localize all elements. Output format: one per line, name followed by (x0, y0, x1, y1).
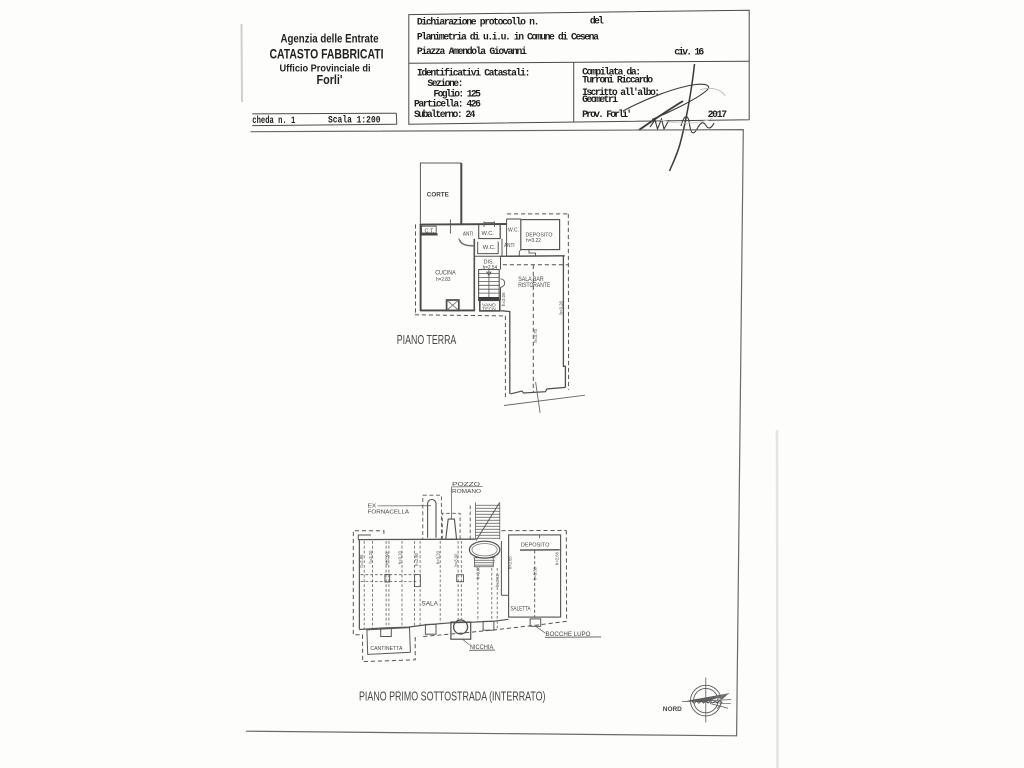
svg-text:PIANO PRIMO SOTTOSTRADA (INTER: PIANO PRIMO SOTTOSTRADA (INTERRATO) (359, 689, 546, 704)
svg-text:h=3.00: h=3.00 (453, 553, 458, 567)
svg-text:TECN: TECN (482, 307, 496, 313)
svg-text:2017: 2017 (708, 109, 728, 120)
svg-text:h=3.20: h=3.20 (398, 550, 403, 564)
svg-text:W.C.: W.C. (483, 245, 496, 251)
svg-text:DEPOSITO: DEPOSITO (521, 543, 550, 549)
svg-text:h=2.90: h=2.90 (414, 552, 419, 566)
svg-text:EX: EX (368, 503, 377, 509)
svg-text:Scala 1:200: Scala 1:200 (328, 115, 381, 127)
svg-text:h=2.86: h=2.86 (359, 554, 364, 568)
svg-text:Agenzia delle Entrate: Agenzia delle Entrate (281, 34, 379, 46)
svg-text:h=3.70: h=3.70 (533, 328, 538, 342)
svg-text:h=2.54: h=2.54 (483, 265, 498, 271)
svg-text:PIANO TERRA: PIANO TERRA (397, 333, 457, 347)
svg-text:civ. 16: civ. 16 (674, 47, 704, 58)
svg-text:SALETTA: SALETTA (511, 606, 531, 612)
svg-text:h=3.20: h=3.20 (559, 300, 564, 314)
svg-text:CORTE: CORTE (427, 191, 450, 198)
svg-text:CUCINA: CUCINA (435, 269, 456, 276)
svg-text:h=2.66: h=2.66 (555, 551, 560, 565)
svg-text:ANTI: ANTI (504, 243, 515, 249)
svg-text:Planimetria di u.i.u. in Comun: Planimetria di u.i.u. in Comune di Cesen… (417, 31, 599, 42)
svg-text:Turroni Riccardo: Turroni Riccardo (582, 75, 653, 86)
svg-text:CATASTO FABBRICATI: CATASTO FABBRICATI (270, 46, 384, 61)
svg-text:h=3.22: h=3.22 (526, 238, 541, 244)
svg-text:h=2.90: h=2.90 (385, 551, 390, 565)
svg-text:NORD: NORD (663, 706, 682, 713)
svg-text:h=2.83: h=2.83 (436, 277, 451, 283)
svg-text:h=3.06: h=3.06 (475, 566, 480, 580)
svg-text:SALA: SALA (421, 601, 438, 608)
svg-text:h=3.20: h=3.20 (368, 550, 373, 564)
svg-text:ROMANO: ROMANO (452, 489, 481, 495)
svg-text:h=3.06: h=3.06 (501, 292, 506, 306)
svg-text:ANTI: ANTI (463, 231, 474, 237)
svg-text:Forli': Forli' (317, 73, 343, 87)
svg-text:Piazza Amendola Giovanni: Piazza Amendola Giovanni (417, 46, 527, 57)
svg-text:del: del (590, 16, 604, 27)
svg-text:CANTINETTA: CANTINETTA (370, 646, 402, 652)
svg-text:Identificativi Catastali:: Identificativi Catastali: (417, 67, 531, 78)
svg-text:RISTORANTE: RISTORANTE (518, 282, 550, 289)
svg-text:Dichiarazione protocollo n.: Dichiarazione protocollo n. (417, 17, 540, 28)
svg-text:h=2.65: h=2.65 (507, 556, 512, 570)
svg-text:cheda n. 1: cheda n. 1 (252, 115, 295, 127)
svg-text:Geometri: Geometri (582, 94, 618, 105)
svg-text:W.C.: W.C. (482, 231, 495, 237)
svg-text:h=3.20: h=3.20 (435, 550, 440, 564)
svg-text:h=3.30: h=3.30 (532, 566, 537, 580)
svg-text:C.T.: C.T. (425, 228, 435, 234)
svg-text:Particella: 426: Particella: 426 (414, 98, 481, 109)
svg-text:FORNACELLA: FORNACELLA (368, 510, 410, 516)
svg-text:h=2.52: h=2.52 (495, 573, 500, 587)
svg-text:Subalterno: 24: Subalterno: 24 (414, 109, 476, 120)
svg-text:W.C.: W.C. (508, 228, 519, 234)
